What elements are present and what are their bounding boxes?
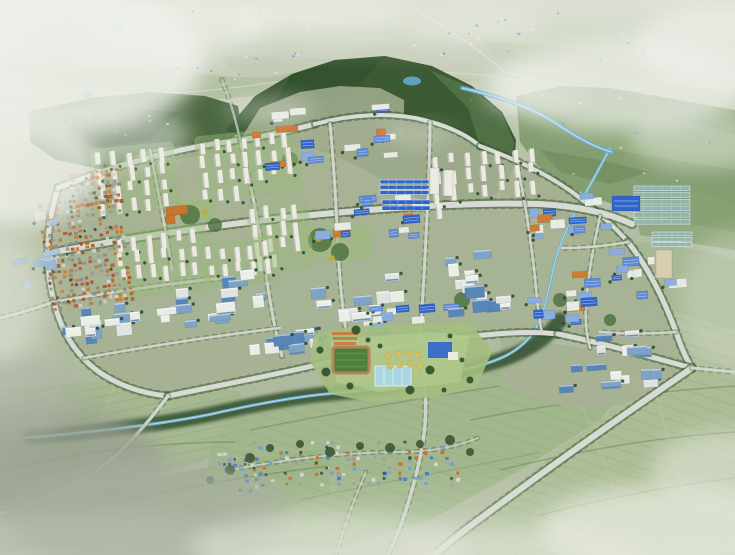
park-tree <box>347 383 354 390</box>
house <box>104 258 109 262</box>
house <box>98 217 102 221</box>
house <box>126 271 130 275</box>
landmark-shade <box>442 171 444 196</box>
apartment-tower <box>449 153 454 163</box>
factory-building <box>265 162 280 170</box>
house <box>101 210 105 214</box>
house <box>114 289 117 293</box>
factory-building <box>308 156 323 163</box>
house <box>112 247 115 250</box>
cloud <box>225 98 315 122</box>
factory-building <box>616 265 628 273</box>
apartment-tower <box>528 162 533 172</box>
canopy-row <box>333 337 357 340</box>
house <box>378 451 381 454</box>
house <box>78 258 81 261</box>
cloud <box>405 7 545 43</box>
house <box>115 298 119 302</box>
house <box>82 262 86 265</box>
factory-building <box>403 214 421 224</box>
house <box>388 466 391 469</box>
factory-building <box>369 306 383 312</box>
house <box>79 304 83 308</box>
house <box>97 206 101 209</box>
house <box>93 259 97 263</box>
factory-building <box>533 310 543 319</box>
factory-building <box>371 103 389 110</box>
house <box>78 225 81 228</box>
house <box>91 213 95 217</box>
village-tree-clump <box>325 447 335 457</box>
flower-bed <box>395 351 401 357</box>
autumn-tree <box>329 255 335 261</box>
garden-tree <box>233 458 236 461</box>
house <box>74 304 79 308</box>
house <box>88 260 92 264</box>
house <box>84 235 87 239</box>
landmark-building-2 <box>276 125 298 133</box>
house <box>76 247 80 251</box>
factory-building <box>396 305 410 313</box>
house <box>79 278 83 281</box>
factory-building <box>372 316 382 323</box>
house <box>102 294 106 298</box>
house <box>98 264 102 268</box>
house <box>112 173 116 177</box>
park-tree <box>352 326 361 335</box>
house <box>441 446 445 449</box>
factory-building <box>566 301 579 311</box>
house <box>346 452 350 455</box>
house <box>91 244 95 248</box>
factory-building <box>636 291 648 300</box>
village-tree-clump <box>266 444 274 452</box>
house <box>279 451 282 454</box>
landmark-building-3 <box>612 196 640 211</box>
house <box>105 226 109 230</box>
house <box>129 286 133 290</box>
house <box>111 183 115 187</box>
house <box>91 207 95 211</box>
house <box>72 225 77 229</box>
house <box>115 225 118 229</box>
house <box>71 248 75 252</box>
landmark-roof <box>656 250 672 278</box>
canopy-row <box>334 342 356 345</box>
house <box>107 280 111 284</box>
house <box>80 282 84 285</box>
house <box>118 257 122 261</box>
house <box>97 255 100 258</box>
factory-building <box>601 223 612 230</box>
factory-building <box>565 314 579 322</box>
farm-speck <box>491 110 494 112</box>
house <box>81 287 85 290</box>
house <box>408 467 411 471</box>
house <box>98 187 101 190</box>
garden-tree <box>315 461 318 464</box>
landmark-roof <box>444 170 453 196</box>
house <box>104 201 109 205</box>
house <box>440 451 444 454</box>
house <box>82 292 85 295</box>
landmark-roof <box>612 196 640 211</box>
house <box>269 462 273 465</box>
house <box>118 293 121 297</box>
house <box>74 232 78 236</box>
house <box>120 230 124 234</box>
house <box>99 233 103 237</box>
pond <box>403 77 421 86</box>
house <box>445 457 449 460</box>
house <box>98 301 101 305</box>
house <box>218 453 222 456</box>
house <box>250 464 254 467</box>
landmark-building-5 <box>428 168 439 194</box>
house <box>79 242 83 246</box>
house <box>96 286 100 290</box>
factory-building <box>530 225 540 232</box>
house <box>115 230 119 234</box>
flower-bed <box>407 361 413 367</box>
house <box>76 251 80 255</box>
farm-speck <box>676 180 678 182</box>
house <box>84 204 87 207</box>
house <box>89 202 93 206</box>
house <box>73 269 77 273</box>
house <box>259 446 263 449</box>
house <box>434 463 437 467</box>
factory-building <box>334 222 351 231</box>
house <box>114 199 118 202</box>
house <box>117 245 121 249</box>
house <box>86 213 90 217</box>
house <box>85 241 90 245</box>
factory-building <box>569 217 587 225</box>
house <box>108 210 113 214</box>
house <box>71 253 74 256</box>
house <box>295 461 298 464</box>
farm-speck <box>614 178 616 180</box>
park-tree <box>460 358 465 363</box>
factory-building <box>633 269 642 278</box>
house <box>71 222 75 226</box>
house <box>108 248 112 251</box>
apartment-tower <box>468 183 473 192</box>
house <box>97 291 101 294</box>
house <box>120 225 123 229</box>
factory-building <box>580 193 594 200</box>
house <box>102 285 106 288</box>
house <box>78 267 81 270</box>
house <box>123 288 127 291</box>
house <box>73 263 77 267</box>
house <box>450 462 454 466</box>
factory-building <box>301 140 315 149</box>
landmark-building-1 <box>166 216 176 225</box>
factory-building <box>574 226 586 234</box>
factory-building <box>357 148 369 157</box>
house <box>118 283 122 287</box>
house <box>228 458 231 461</box>
park-tree <box>378 344 383 349</box>
house <box>117 182 121 186</box>
house <box>71 258 75 262</box>
house <box>92 249 96 253</box>
house <box>110 263 114 267</box>
factory-building <box>664 279 677 286</box>
house <box>263 466 266 469</box>
factory-building <box>529 208 539 218</box>
flower-bed <box>385 353 391 359</box>
farm-speck <box>643 173 645 175</box>
house <box>82 298 86 301</box>
house <box>107 184 111 187</box>
house <box>113 284 117 287</box>
village-tree-clump <box>445 435 455 445</box>
house <box>108 195 112 199</box>
park-tree <box>448 334 453 339</box>
house <box>76 214 80 217</box>
house <box>85 282 89 286</box>
house <box>78 261 82 264</box>
central-park <box>310 322 492 402</box>
house <box>112 188 116 192</box>
apartment-tower <box>209 266 214 275</box>
landmark-roof <box>430 168 439 194</box>
factory-building <box>408 232 419 239</box>
house <box>111 273 115 277</box>
house <box>100 175 105 178</box>
factory-building <box>383 152 397 158</box>
house <box>316 456 319 459</box>
factory-building <box>399 227 410 234</box>
farm-speck <box>620 147 622 149</box>
cloud <box>385 125 455 145</box>
house <box>78 229 82 233</box>
house <box>126 266 130 269</box>
factory-building <box>315 230 331 240</box>
scene-canvas <box>0 0 735 555</box>
house <box>103 291 107 295</box>
house <box>85 276 89 279</box>
house <box>424 451 428 455</box>
house <box>311 441 314 444</box>
house <box>382 457 385 461</box>
factory-building <box>550 219 565 229</box>
house <box>89 235 92 238</box>
house <box>74 236 78 240</box>
house <box>74 241 78 244</box>
house <box>99 200 103 204</box>
house <box>114 294 118 298</box>
house <box>103 263 107 267</box>
landmark-shade <box>428 169 430 194</box>
landmark-building-4 <box>654 250 672 278</box>
house <box>280 457 283 460</box>
house <box>109 295 112 299</box>
house <box>285 456 289 459</box>
house <box>89 302 93 305</box>
farm-speck <box>234 78 236 80</box>
house <box>107 289 111 293</box>
house <box>336 452 339 456</box>
cluster-solar-a <box>380 180 430 195</box>
house <box>76 210 80 213</box>
house <box>78 220 82 223</box>
park-tree <box>317 347 324 354</box>
factory-building <box>363 197 372 207</box>
house <box>408 451 411 454</box>
house <box>113 252 116 255</box>
house <box>103 195 107 198</box>
house <box>456 446 460 449</box>
landmark-roof <box>166 216 176 225</box>
house <box>88 256 92 260</box>
flower-bed <box>387 363 393 369</box>
park-annex <box>448 352 458 360</box>
house <box>75 279 79 282</box>
house <box>252 441 255 444</box>
garden-tree <box>403 441 406 444</box>
house <box>98 196 101 199</box>
house <box>70 289 73 293</box>
house <box>72 299 76 303</box>
factory-building <box>572 271 588 278</box>
house <box>104 169 108 173</box>
house <box>103 190 107 194</box>
flower-bed <box>397 362 403 368</box>
farm-speck <box>275 72 277 73</box>
landmark-building-6 <box>442 170 453 196</box>
house <box>127 281 131 285</box>
house <box>70 283 74 286</box>
house <box>90 280 93 284</box>
house <box>92 291 97 295</box>
house <box>373 456 376 459</box>
factory-building <box>411 316 425 324</box>
house <box>377 441 381 444</box>
park-tree <box>322 368 331 377</box>
house <box>115 272 120 276</box>
house <box>398 462 402 466</box>
house <box>115 168 119 172</box>
house <box>100 170 104 174</box>
house <box>123 245 127 248</box>
house <box>356 457 359 461</box>
factory-building <box>419 304 436 314</box>
house <box>353 462 356 466</box>
house <box>101 184 106 188</box>
house <box>106 180 110 184</box>
house <box>330 441 333 444</box>
park-tree <box>426 366 435 375</box>
factory-building <box>252 131 261 138</box>
house <box>106 237 110 241</box>
house <box>107 205 110 209</box>
farm-speck <box>572 173 574 174</box>
garden-tree <box>325 467 328 470</box>
house <box>337 445 340 449</box>
house <box>122 235 126 238</box>
house <box>87 293 91 297</box>
village-tree-clump <box>416 440 424 448</box>
house <box>96 243 100 247</box>
park-tree <box>366 338 371 343</box>
factory-building <box>566 290 577 297</box>
garden-tree <box>223 463 226 466</box>
farm-speck <box>210 70 212 72</box>
house <box>100 243 103 246</box>
cloud <box>480 81 580 109</box>
tree-clump <box>208 218 222 232</box>
village-tree-clump <box>356 442 364 450</box>
factory-building <box>609 248 625 255</box>
factory-building <box>354 208 370 215</box>
house <box>336 467 340 470</box>
house <box>99 222 102 225</box>
house <box>98 259 101 263</box>
house <box>326 441 329 444</box>
village-tree-clump <box>466 448 474 456</box>
factory-building <box>584 278 601 288</box>
house <box>103 253 107 257</box>
park-tree <box>406 386 415 395</box>
house <box>120 199 124 203</box>
house <box>218 462 221 465</box>
factory-building <box>389 229 399 238</box>
factory-building <box>341 230 351 237</box>
house <box>106 274 110 277</box>
house <box>111 205 116 209</box>
house <box>116 236 120 240</box>
tree-clump <box>553 293 567 307</box>
house <box>223 453 227 456</box>
garden-tree <box>409 456 412 459</box>
cloud <box>50 105 190 165</box>
village-tree-clump <box>245 453 255 463</box>
house <box>351 457 355 461</box>
house <box>118 298 122 302</box>
park-tree <box>467 377 474 384</box>
flower-bed <box>405 350 411 356</box>
house <box>109 200 112 203</box>
house <box>85 245 89 248</box>
village-tree-clump <box>385 443 395 453</box>
house <box>112 240 117 244</box>
house <box>414 457 418 460</box>
house <box>94 201 98 205</box>
house <box>430 456 433 459</box>
house <box>105 269 109 273</box>
factory-building <box>622 256 639 266</box>
house <box>95 265 99 269</box>
house <box>90 271 94 275</box>
house <box>122 277 126 281</box>
house <box>124 297 128 300</box>
tree-clump <box>604 314 616 326</box>
house <box>128 276 132 280</box>
house <box>113 195 118 199</box>
factory-building <box>535 233 544 239</box>
house <box>72 293 76 296</box>
village-tree-clump <box>296 440 304 448</box>
factory-building <box>528 297 542 303</box>
house <box>88 297 91 301</box>
farm-speck <box>238 74 240 75</box>
factory-building <box>612 275 622 281</box>
cluster-apt-s <box>112 222 213 299</box>
